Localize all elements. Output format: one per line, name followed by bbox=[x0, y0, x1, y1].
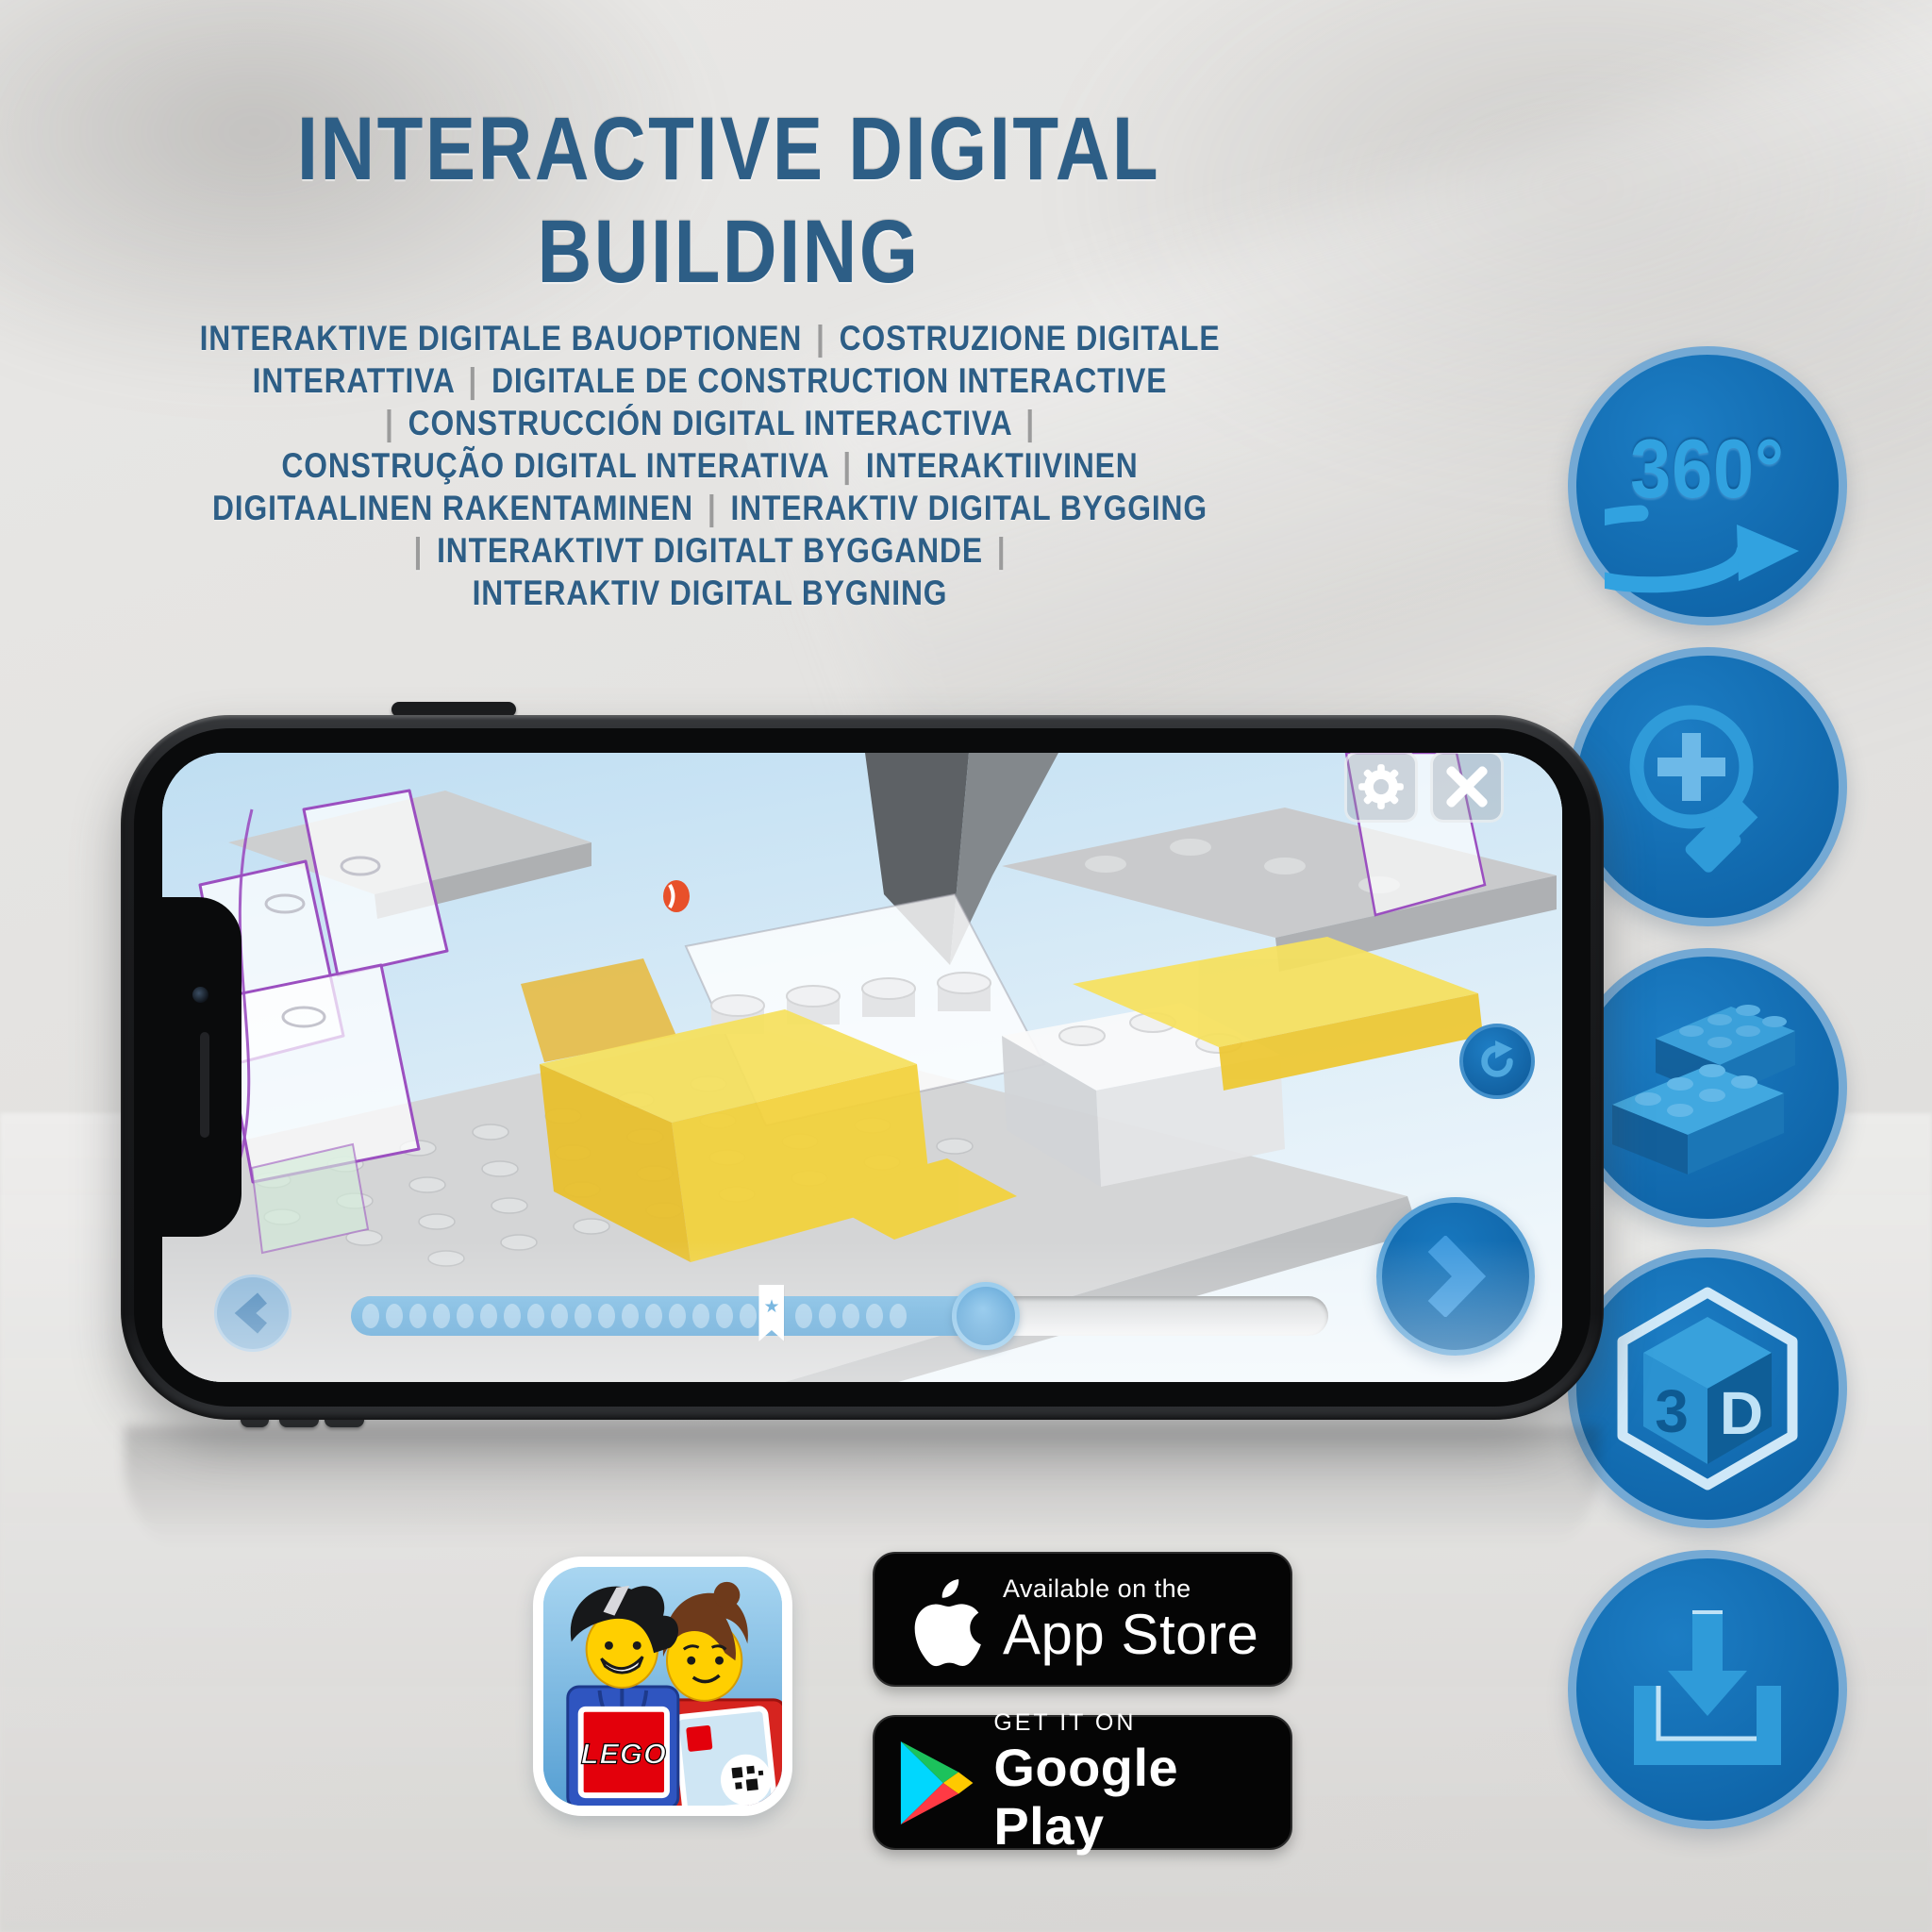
step-dot bbox=[866, 1304, 883, 1328]
step-dot bbox=[409, 1304, 426, 1328]
gear-icon bbox=[1357, 762, 1406, 811]
download-arrow-icon bbox=[1613, 1595, 1802, 1784]
step-dot bbox=[819, 1304, 836, 1328]
chevron-right-icon bbox=[1420, 1236, 1491, 1317]
subtitle-line: INTERAKTIV DIGITAL BYGNING bbox=[99, 572, 1320, 614]
rotation-arrow-icon bbox=[1605, 496, 1827, 609]
subtitle-line: CONSTRUÇÃO DIGITAL INTERATIVA | INTERAKT… bbox=[99, 444, 1320, 487]
step-dot bbox=[480, 1304, 497, 1328]
cube-3-label: 3 bbox=[1655, 1377, 1689, 1445]
step-dot bbox=[527, 1304, 544, 1328]
close-x-icon bbox=[1444, 764, 1490, 809]
slider-handle[interactable] bbox=[952, 1282, 1020, 1350]
step-dot bbox=[575, 1304, 591, 1328]
refresh-rotate-button[interactable] bbox=[1459, 1024, 1535, 1099]
phone-screen: ★ bbox=[162, 753, 1562, 1382]
step-dot bbox=[645, 1304, 662, 1328]
lego-logo-text: LEGO bbox=[581, 1737, 667, 1770]
subtitle-line: DIGITAALINEN RAKENTAMINEN | INTERAKTIV D… bbox=[99, 487, 1320, 529]
page-title: INTERACTIVE DIGITAL BUILDING bbox=[117, 98, 1341, 304]
app-store-tagline: Available on the bbox=[1003, 1574, 1258, 1604]
google-play-badge[interactable]: GET IT ON Google Play bbox=[873, 1715, 1292, 1850]
step-dot bbox=[598, 1304, 615, 1328]
feature-brick-icon bbox=[1568, 948, 1847, 1227]
subtitle-line: | INTERAKTIVT DIGITALT BYGGANDE | bbox=[99, 529, 1320, 572]
step-dot bbox=[740, 1304, 757, 1328]
rotate-arrow-icon bbox=[1475, 1040, 1519, 1083]
previous-step-button[interactable] bbox=[214, 1274, 291, 1352]
step-dot bbox=[362, 1304, 379, 1328]
earpiece-speaker bbox=[200, 1032, 209, 1138]
slider-progress-fill bbox=[351, 1296, 986, 1336]
chevron-left-icon bbox=[234, 1292, 272, 1334]
step-dot bbox=[669, 1304, 686, 1328]
apple-logo-icon bbox=[899, 1573, 986, 1667]
google-play-triangle-icon bbox=[899, 1738, 974, 1828]
lego-bricks-icon bbox=[1599, 984, 1816, 1191]
step-dot bbox=[890, 1304, 907, 1328]
multilingual-subtitle: INTERAKTIVE DIGITALE BAUOPTIONEN | COSTR… bbox=[0, 317, 1420, 614]
feature-360-rotation-icon: 360° bbox=[1568, 346, 1847, 625]
feature-zoom-icon bbox=[1568, 647, 1847, 926]
settings-button[interactable] bbox=[1344, 753, 1418, 823]
feature-download-icon bbox=[1568, 1550, 1847, 1829]
cube-d-label: D bbox=[1720, 1379, 1763, 1447]
app-store-badge[interactable]: Available on the App Store bbox=[873, 1552, 1292, 1687]
google-play-name: Google Play bbox=[993, 1739, 1291, 1856]
step-dot bbox=[842, 1304, 859, 1328]
step-dot bbox=[622, 1304, 639, 1328]
close-button[interactable] bbox=[1430, 753, 1504, 823]
step-dot bbox=[457, 1304, 474, 1328]
magnifier-plus-icon bbox=[1608, 688, 1807, 886]
lego-3d-build-scene[interactable] bbox=[162, 753, 1562, 1382]
step-dot bbox=[386, 1304, 403, 1328]
app-store-name: App Store bbox=[1003, 1606, 1258, 1664]
poster-canvas: INTERACTIVE DIGITAL BUILDING INTERAKTIVE… bbox=[0, 0, 1932, 1932]
front-camera bbox=[192, 987, 208, 1003]
google-play-tagline: GET IT ON bbox=[993, 1709, 1291, 1737]
step-dot bbox=[433, 1304, 450, 1328]
build-step-slider[interactable]: ★ bbox=[351, 1296, 1328, 1336]
step-dot bbox=[692, 1304, 709, 1328]
step-dot bbox=[551, 1304, 568, 1328]
lego-app-icon[interactable]: LEGO bbox=[533, 1557, 792, 1816]
step-dot bbox=[795, 1304, 812, 1328]
subtitle-line: | CONSTRUCCIÓN DIGITAL INTERACTIVA | bbox=[99, 402, 1320, 444]
step-dot bbox=[504, 1304, 521, 1328]
subtitle-line: INTERATTIVA | DIGITALE DE CONSTRUCTION I… bbox=[99, 359, 1320, 402]
feature-3d-view-icon: 3 D bbox=[1568, 1249, 1847, 1528]
3d-cube-icon: 3 D bbox=[1604, 1285, 1811, 1492]
phone-reflection bbox=[125, 1426, 1600, 1568]
step-dot bbox=[716, 1304, 733, 1328]
subtitle-line: INTERAKTIVE DIGITALE BAUOPTIONEN | COSTR… bbox=[99, 317, 1320, 359]
lego-app-artwork: LEGO bbox=[543, 1567, 782, 1806]
next-step-button[interactable] bbox=[1376, 1197, 1535, 1356]
smartphone: ★ bbox=[121, 715, 1604, 1420]
